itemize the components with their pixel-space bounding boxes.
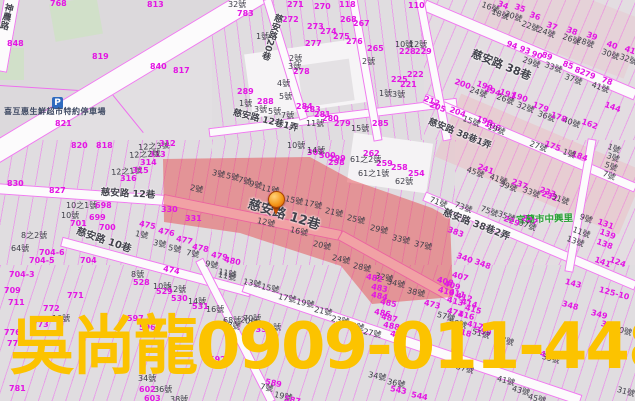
parcel-number-label: 781 — [9, 385, 26, 393]
parcel-number-label: 331 — [185, 215, 202, 223]
house-number-label: 14號 — [307, 147, 325, 155]
parcel-number-label: 699 — [89, 214, 106, 222]
parcel-number-label: 820 — [71, 142, 88, 150]
parcel-number-label: 528 — [133, 279, 150, 287]
central-building — [297, 59, 354, 108]
parcel-number-label: 768 — [50, 0, 67, 8]
parcel-number-label: 221 — [400, 81, 417, 89]
parcel-number-label: 704-3 — [9, 271, 35, 279]
parcel-number-label: 830 — [7, 180, 24, 188]
house-number-label: 7號 — [281, 112, 294, 120]
house-number-label: 64號 — [11, 245, 29, 253]
parcel-number-label: 821 — [55, 120, 72, 128]
house-number-label: 4號 — [277, 80, 290, 88]
parcel-number-label: 285 — [372, 120, 389, 128]
parcel-number-label: 709 — [4, 287, 21, 295]
parcel-number-label: 118 — [339, 1, 356, 9]
parcel-number-label: 704-5 — [29, 257, 55, 265]
parcel-number-label: 817 — [173, 67, 190, 75]
house-number-label: 1號 — [379, 90, 392, 98]
parcel-number-label: 277 — [305, 40, 322, 48]
house-number-label: 1號 — [239, 100, 252, 108]
parcel-number-label: 298 — [328, 159, 345, 167]
house-number-label: 5號 — [279, 93, 292, 101]
parcel-number-label: 711 — [8, 299, 25, 307]
parcel-number-label: 840 — [150, 63, 167, 71]
parcel-boundary-line — [110, 92, 144, 133]
parcel-number-label: 530 — [171, 295, 188, 303]
watermark-text: 吳尚龍0909-011-448 — [10, 312, 635, 382]
parcel-number-label: 783 — [237, 10, 254, 18]
parcel-number-label: 544 — [410, 391, 428, 401]
parcel-number-label: 265 — [367, 45, 384, 53]
house-number-label: 8之2號 — [21, 232, 47, 240]
parcel-number-label: 316 — [120, 175, 137, 183]
house-number-label: 5號 — [268, 108, 281, 116]
marker-ball — [268, 191, 285, 208]
house-number-label: 2號 — [362, 58, 375, 66]
parcel-number-label: 270 — [314, 3, 331, 11]
parcel-number-label: 587 — [283, 395, 301, 401]
parcel-number-label: 289 — [237, 88, 254, 96]
parcel-number-label: 771 — [67, 292, 84, 300]
parcel-number-label: 813 — [147, 1, 164, 9]
parcel-number-label: 603 — [144, 395, 161, 401]
house-number-label: 11號 — [306, 120, 324, 128]
location-marker-pin[interactable] — [268, 191, 284, 221]
parcel-number-label: 110 — [408, 2, 425, 10]
parking-lot-label: 喜互惠生鮮超市特約停車場 — [4, 106, 106, 117]
house-number-label: 3號 — [392, 91, 405, 99]
house-number-label: 32號 — [228, 1, 246, 9]
parcel-number-label: 819 — [92, 53, 109, 61]
house-number-label: 15號 — [351, 125, 369, 133]
parcel-number-label: 818 — [96, 142, 113, 150]
house-number-label: 61之2號 — [350, 156, 381, 164]
house-number-label: 61之1號 — [358, 170, 389, 178]
map-canvas[interactable]: P 喜互惠生鮮超市特約停車場 宜蘭市中興里 768813848819840817… — [0, 0, 635, 401]
house-number-label: 10號 — [287, 142, 305, 150]
parcel-number-label: 330 — [161, 206, 178, 214]
house-number-label: 10之1號 — [66, 202, 97, 210]
parcel-number-label: 228 — [399, 48, 416, 56]
parcel-number-label: 271 — [287, 1, 304, 9]
parcel-number-label: 272 — [282, 16, 299, 24]
house-number-label: 36號 — [154, 386, 172, 394]
house-number-label: 3號 — [288, 63, 301, 71]
parcel-number-label: 229 — [415, 48, 432, 56]
parcel-number-label: 700 — [99, 224, 116, 232]
house-number-label: 62號 — [395, 178, 413, 186]
parcel-number-label: 827 — [49, 187, 66, 195]
parcel-number-label: 848 — [7, 40, 24, 48]
parcel-number-label: 279 — [334, 120, 351, 128]
parcel-number-label: 258 — [391, 164, 408, 172]
parcel-number-label: 312 — [159, 140, 176, 148]
house-number-label: 38號 — [170, 396, 188, 401]
parcel-number-label: 704 — [80, 257, 97, 265]
parcel-number-label: 222 — [407, 71, 424, 79]
parcel-number-label: 267 — [353, 20, 370, 28]
parcel-number-label: 698 — [95, 202, 112, 210]
parcel-number-label: 276 — [346, 38, 363, 46]
